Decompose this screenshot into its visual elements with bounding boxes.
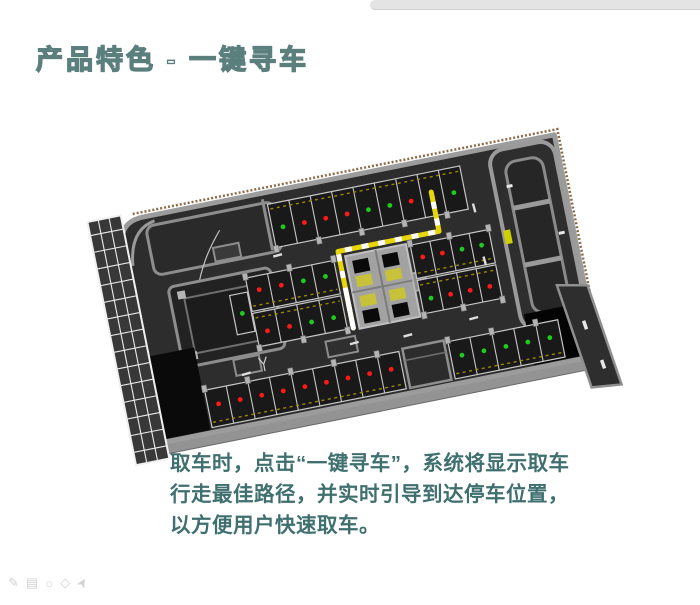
- ellipse-icon[interactable]: ○: [45, 576, 53, 591]
- body-text: 取车时，点击“一键寻车”，系统将显示取车 行走最佳路径，并实时引导到达停车位置，…: [170, 449, 580, 541]
- pencil-icon[interactable]: ✎: [8, 575, 19, 591]
- bottom-utility-room: [402, 341, 451, 388]
- shape-icon[interactable]: ◇: [60, 575, 70, 591]
- body-line-2: 行走最佳路径，并实时引导到达停车位置，: [170, 480, 580, 511]
- image-icon[interactable]: ▤: [26, 575, 38, 591]
- body-line-1: 取车时，点击“一键寻车”，系统将显示取车: [170, 449, 580, 480]
- body-line-3: 以方便用户快速取车。: [170, 511, 580, 542]
- editor-tool-icons: ✎▤○◇➤: [8, 574, 88, 592]
